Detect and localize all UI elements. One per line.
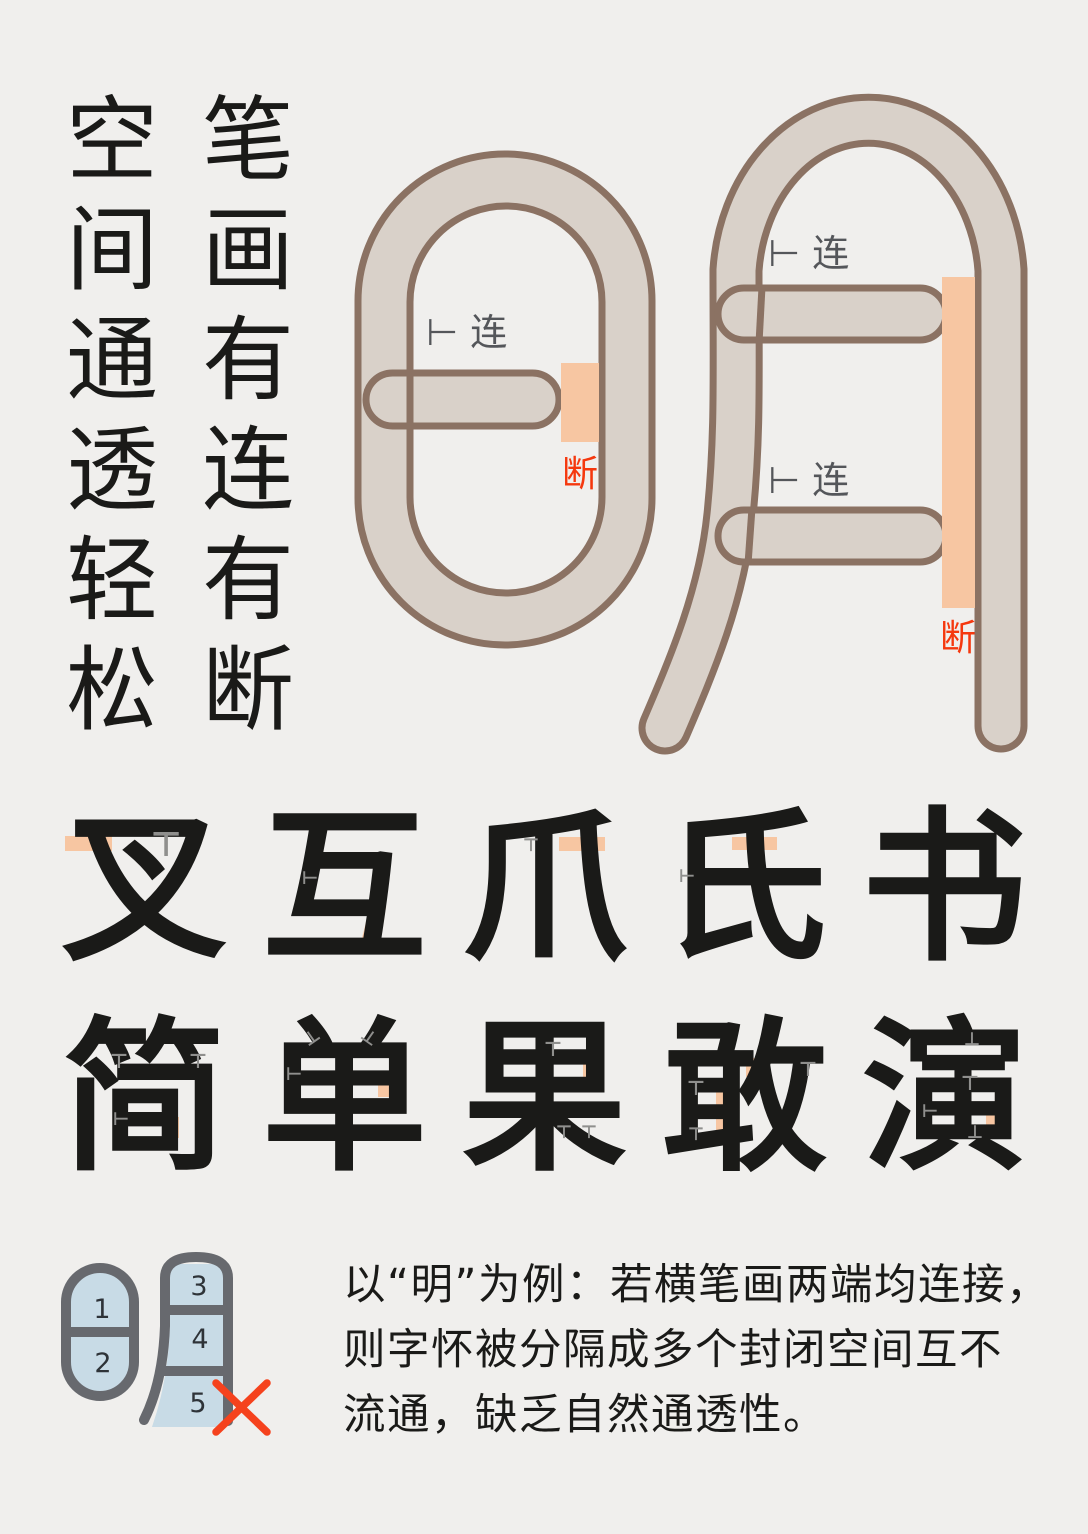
junction-mark: ⊤ (961, 1073, 979, 1093)
join-marks-layer: ⊤⊢⊤⊢⊤⊤⊢⊥⊥⊢⊤⊤⊤⊤⊤⊤⊥⊤⊢⊥ (0, 0, 1088, 1534)
junction-mark: ⊤ (150, 828, 181, 862)
junction-mark: ⊤ (799, 1059, 817, 1079)
junction-mark: ⊥ (967, 1124, 983, 1142)
junction-mark: ⊥ (357, 1026, 381, 1050)
junction-mark: ⊤ (687, 1078, 705, 1098)
junction-mark: ⊤ (581, 1124, 597, 1142)
junction-mark: ⊢ (286, 1066, 302, 1084)
junction-mark: ⊤ (556, 1124, 572, 1142)
junction-mark: ⊢ (922, 1103, 938, 1121)
junction-mark: ⊤ (688, 1126, 704, 1144)
junction-mark: ⊢ (113, 1111, 129, 1129)
junction-mark: ⊥ (300, 1026, 324, 1050)
junction-mark: ⊥ (964, 1031, 980, 1049)
junction-mark: ⊤ (544, 1039, 562, 1059)
junction-mark: ⊤ (110, 1051, 128, 1071)
junction-mark: ⊤ (189, 1051, 207, 1071)
poster-canvas: ⊢连 ⊢连 ⊢连 断 断 1 2 3 4 5 笔画有连有断空间通透轻松 叉互爪氏… (0, 0, 1088, 1534)
junction-mark: ⊤ (523, 837, 539, 855)
junction-mark: ⊢ (679, 868, 695, 886)
junction-mark: ⊢ (302, 870, 318, 888)
